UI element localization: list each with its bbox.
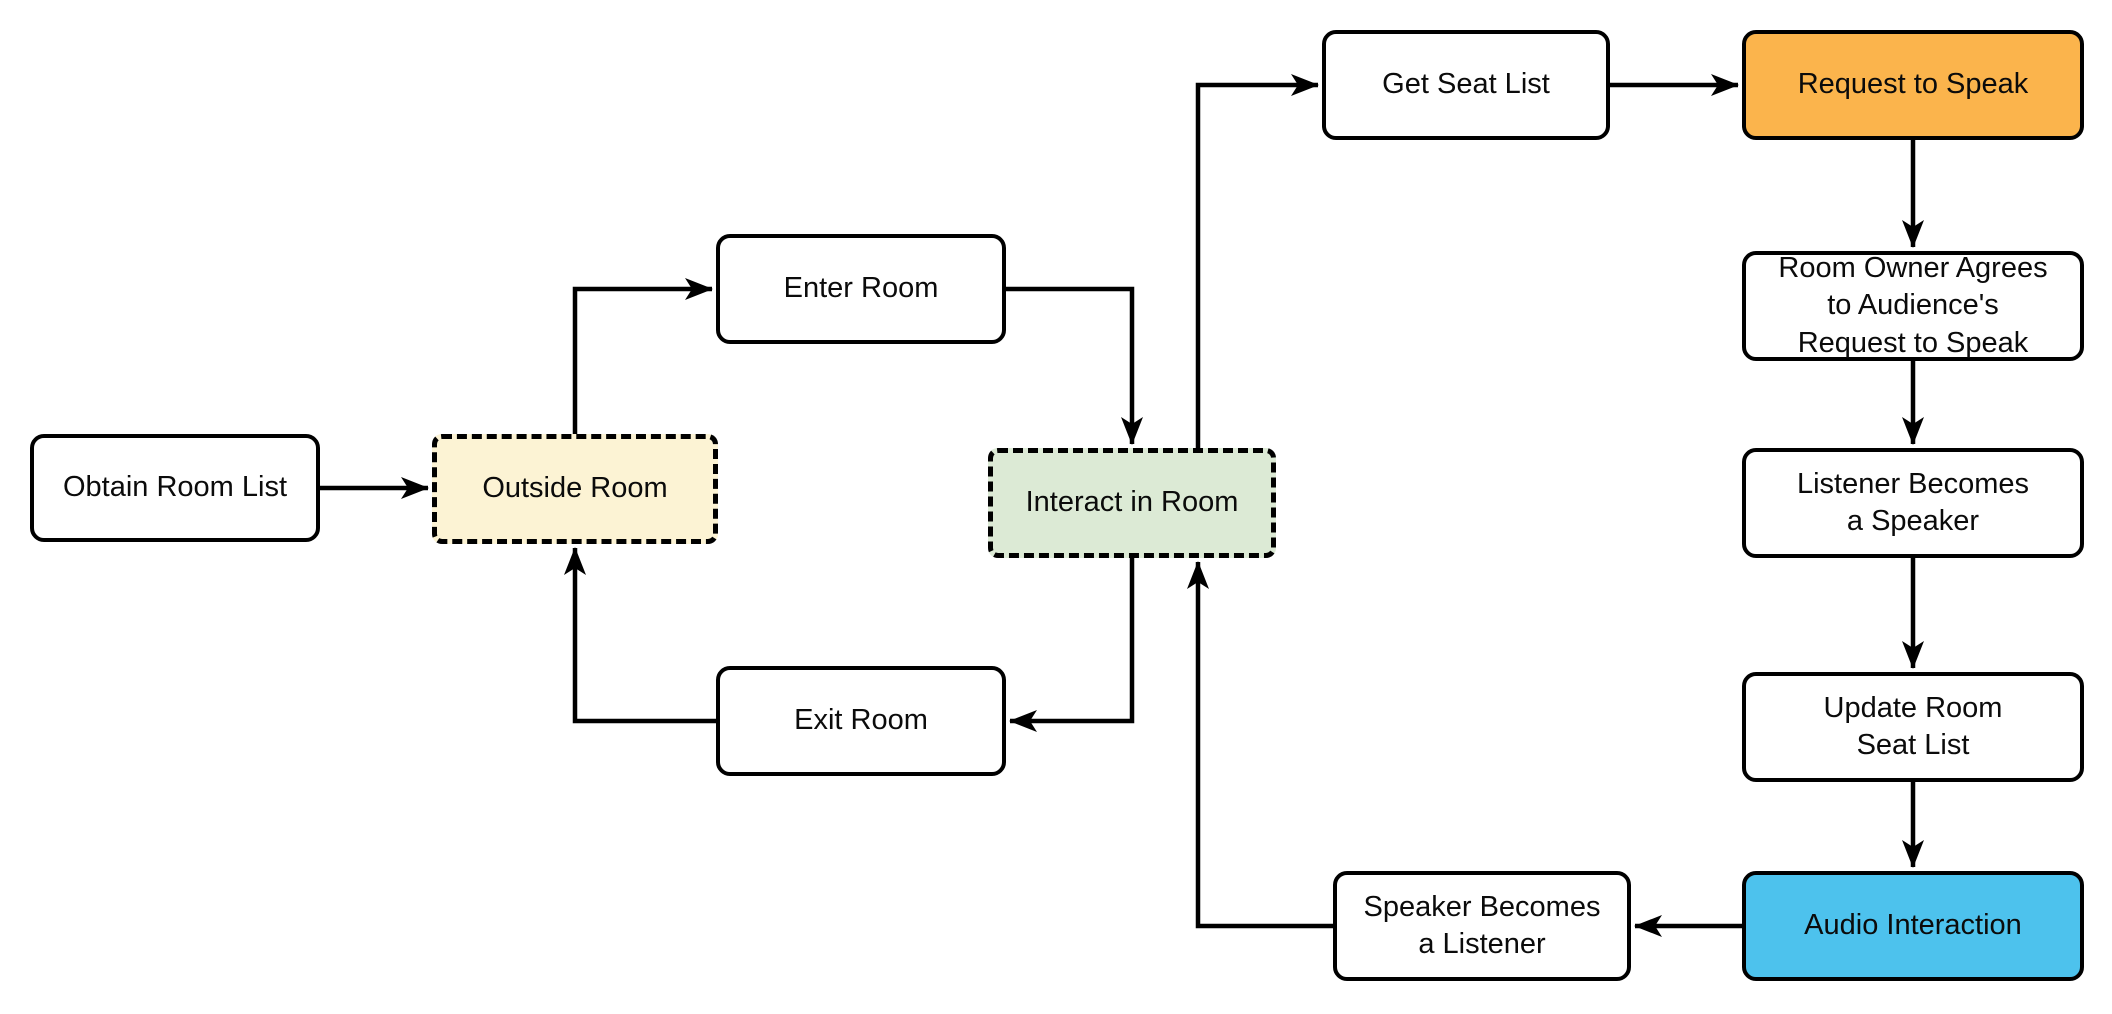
node-enter-room: Enter Room — [716, 234, 1006, 344]
node-listener-becomes-speaker: Listener Becomes a Speaker — [1742, 448, 2084, 558]
node-speaker-becomes-listener: Speaker Becomes a Listener — [1333, 871, 1631, 981]
node-obtain-room-list: Obtain Room List — [30, 434, 320, 542]
node-listener-becomes-speaker-label: Listener Becomes a Speaker — [1789, 466, 2037, 540]
node-audio-interaction: Audio Interaction — [1742, 871, 2084, 981]
node-request-to-speak-label: Request to Speak — [1790, 66, 2037, 103]
edge-interact-in-room-to-exit-room — [1010, 558, 1132, 721]
edge-outside-room-to-enter-room — [575, 289, 712, 434]
flowchart-canvas: Obtain Room List Outside Room Enter Room… — [0, 0, 2112, 1014]
node-get-seat-list: Get Seat List — [1322, 30, 1610, 140]
node-room-owner-agrees: Room Owner Agrees to Audience's Request … — [1742, 251, 2084, 361]
node-speaker-becomes-listener-label: Speaker Becomes a Listener — [1356, 889, 1609, 963]
node-update-room-seat-list: Update Room Seat List — [1742, 672, 2084, 782]
node-request-to-speak: Request to Speak — [1742, 30, 2084, 140]
node-audio-interaction-label: Audio Interaction — [1796, 907, 2030, 944]
node-exit-room-label: Exit Room — [786, 702, 936, 739]
edge-interact-in-room-to-get-seat-list — [1198, 85, 1318, 448]
node-exit-room: Exit Room — [716, 666, 1006, 776]
node-get-seat-list-label: Get Seat List — [1374, 66, 1558, 103]
node-obtain-room-list-label: Obtain Room List — [55, 469, 295, 506]
node-outside-room-label: Outside Room — [474, 470, 675, 507]
node-update-room-seat-list-label: Update Room Seat List — [1816, 690, 2011, 764]
node-outside-room: Outside Room — [432, 434, 718, 544]
edge-exit-room-to-outside-room — [575, 548, 716, 721]
node-enter-room-label: Enter Room — [776, 270, 947, 307]
node-interact-in-room-label: Interact in Room — [1018, 484, 1247, 521]
edge-speaker-becomes-listener-to-interact-in-room — [1198, 562, 1333, 926]
node-room-owner-agrees-label: Room Owner Agrees to Audience's Request … — [1770, 250, 2055, 361]
edge-enter-room-to-interact-in-room — [1006, 289, 1132, 444]
node-interact-in-room: Interact in Room — [988, 448, 1276, 558]
